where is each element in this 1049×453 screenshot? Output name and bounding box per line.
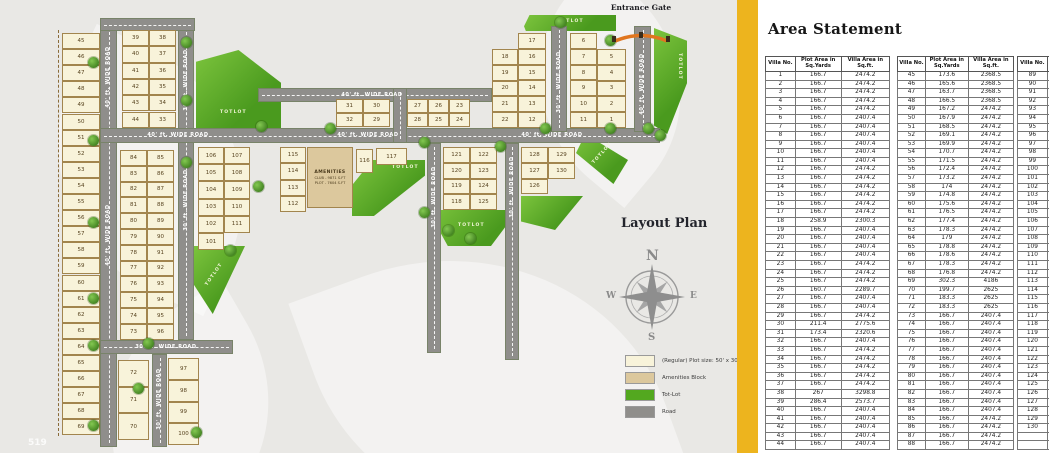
plot-124: 124	[470, 179, 497, 195]
table-cell: 166.7	[795, 407, 841, 416]
table-cell: 2474.2	[968, 123, 1013, 132]
table-cell: 2407.4	[968, 398, 1013, 407]
table-cell: 46	[898, 80, 926, 89]
table-cell: 178.3	[925, 261, 968, 270]
table-row: 106	[1018, 218, 1049, 227]
table-cell: 121	[1018, 346, 1048, 355]
table-row: 76166.72407.4	[898, 338, 1014, 347]
table-cell: 166.7	[795, 140, 841, 149]
table-cell: 166.7	[795, 441, 841, 450]
table-cell: 183.3	[925, 295, 968, 304]
column-header: Villa No.	[1018, 57, 1048, 72]
table-cell: 2407.4	[841, 226, 889, 235]
legend-item: Road	[625, 406, 676, 418]
table-row: 116	[1018, 303, 1049, 312]
table-row: 48166.52368.5	[898, 97, 1014, 106]
table-cell: 91	[1018, 89, 1048, 98]
table-cell: 78	[898, 355, 926, 364]
table-row: 6166.72407.4	[766, 114, 890, 123]
plot-84: 84	[120, 150, 147, 166]
table-cell: 27	[766, 295, 796, 304]
tree-icon	[88, 135, 99, 146]
table-row: 61176.52474.2	[898, 209, 1014, 218]
table-row: 4166.72474.2	[766, 97, 890, 106]
table-row: 59174.82474.2	[898, 192, 1014, 201]
table-cell: 2474.2	[968, 209, 1013, 218]
table-cell: 166.7	[795, 261, 841, 270]
plot-80: 80	[120, 213, 147, 229]
plot-62: 62	[62, 307, 100, 323]
table-row: 581742474.2	[898, 183, 1014, 192]
table-row: 77166.72407.4	[898, 346, 1014, 355]
column-header: Plot Area in Sq.Yards	[925, 57, 968, 72]
tree-icon	[465, 233, 476, 244]
road-label: 40' ft. WIDE ROAD	[341, 92, 402, 98]
table-row: 115	[1018, 295, 1049, 304]
plot-29: 29	[363, 113, 390, 127]
table-cell: 267	[795, 389, 841, 398]
table-row: 119	[1018, 329, 1049, 338]
table-cell: 166.7	[925, 346, 968, 355]
table-cell: 55	[898, 157, 926, 166]
table-cell: 88	[898, 441, 926, 450]
plot-81: 81	[120, 197, 147, 213]
table-cell: 166.7	[795, 372, 841, 381]
table-cell: 85	[898, 415, 926, 424]
plot-88: 88	[147, 197, 174, 213]
table-row: 89	[1018, 71, 1049, 80]
table-cell: 2775.6	[841, 321, 889, 330]
plot-104: 104	[198, 181, 224, 198]
plot-40: 40	[122, 46, 149, 62]
table-cell: 70	[898, 286, 926, 295]
table-cell: 2407.4	[841, 132, 889, 141]
table-cell: 103	[1018, 192, 1048, 201]
table-cell: 15	[766, 192, 796, 201]
table-cell: 25	[766, 278, 796, 287]
table-cell: 126	[1018, 389, 1048, 398]
plot-120: 120	[443, 163, 470, 179]
table-cell: 166.7	[795, 183, 841, 192]
plot-8: 8	[570, 65, 597, 81]
table-row: 12166.72474.2	[766, 166, 890, 175]
plot-36: 36	[149, 63, 176, 79]
table-cell: 106	[1018, 218, 1048, 227]
road-label: 40' ft. WIDE ROAD	[521, 132, 582, 138]
plot-42: 42	[122, 79, 149, 95]
plot-30: 30	[363, 99, 390, 113]
plot-127: 127	[521, 163, 548, 179]
table-cell: 166.7	[925, 415, 968, 424]
table-cell: 166.7	[795, 338, 841, 347]
table-row: 14166.72474.2	[766, 183, 890, 192]
plot-121: 121	[443, 147, 470, 163]
plot-43: 43	[122, 95, 149, 111]
table-cell: 166.7	[795, 192, 841, 201]
table-row: 65178.82474.2	[898, 243, 1014, 252]
table-cell: 166.7	[925, 338, 968, 347]
table-cell: 34	[766, 355, 796, 364]
table-cell: 2407.4	[841, 243, 889, 252]
plot-67: 67	[62, 387, 100, 403]
table-row: 75166.72407.4	[898, 329, 1014, 338]
table-cell: 87	[898, 432, 926, 441]
table-cell: 178.8	[925, 243, 968, 252]
table-cell: 2300.3	[841, 218, 889, 227]
plot-38: 38	[149, 30, 176, 46]
table-row: 120	[1018, 338, 1049, 347]
table-cell: 2474.2	[968, 252, 1013, 261]
plot-114: 114	[280, 163, 306, 179]
tree-icon	[605, 123, 616, 134]
table-cell: 2474.2	[841, 355, 889, 364]
plot-28: 28	[407, 113, 428, 127]
road-label: 40' ft. WIDE ROAD	[105, 46, 111, 107]
table-cell: 12	[766, 166, 796, 175]
table-cell: 2407.4	[841, 295, 889, 304]
table-cell: 90	[1018, 80, 1048, 89]
table-cell: 2474.2	[968, 114, 1013, 123]
table-cell: 110	[1018, 252, 1048, 261]
legend-swatch	[625, 355, 655, 367]
road-label: 30' ft. WIDE ROAD	[509, 156, 515, 217]
table-row: 30211.42775.6	[766, 321, 890, 330]
table-cell: 166.7	[925, 389, 968, 398]
plot-59: 59	[62, 258, 100, 274]
plot-76: 76	[120, 276, 147, 292]
table-cell: 79	[898, 364, 926, 373]
table-cell: 171.5	[925, 157, 968, 166]
table-cell: 74	[898, 321, 926, 330]
tree-icon	[191, 427, 202, 438]
plot-24: 24	[449, 113, 470, 127]
table-row: 105	[1018, 209, 1049, 218]
table-row: 46165.62368.5	[898, 80, 1014, 89]
table-cell: 75	[898, 329, 926, 338]
tree-icon	[88, 293, 99, 304]
table-cell: 35	[766, 364, 796, 373]
table-cell: 2474.2	[841, 209, 889, 218]
table-cell: 2407.4	[841, 149, 889, 158]
legend-swatch	[625, 389, 655, 401]
plot-74: 74	[120, 308, 147, 324]
legend-item: (Regular) Plot size: 50' x 30'	[625, 355, 737, 367]
table-cell: 31	[766, 329, 796, 338]
table-row: 44166.72407.4	[766, 441, 890, 450]
table-cell: 2474.2	[841, 261, 889, 270]
table-cell: 2474.2	[841, 192, 889, 201]
tree-icon	[419, 137, 430, 148]
table-row: 9166.72407.4	[766, 140, 890, 149]
table-cell: 77	[898, 346, 926, 355]
table-row: 13166.72474.2	[766, 175, 890, 184]
plot-10: 10	[570, 96, 597, 112]
table-cell: 166.7	[795, 71, 841, 80]
tree-icon	[181, 95, 192, 106]
table-cell: 114	[1018, 286, 1048, 295]
table-cell: 166.7	[795, 114, 841, 123]
road-label: 40' ft. WIDE ROAD	[147, 132, 208, 138]
plot-57: 57	[62, 226, 100, 242]
faint-watermark: 519	[28, 438, 47, 448]
plot-90: 90	[147, 229, 174, 245]
table-cell: 178.3	[925, 226, 968, 235]
table-row: 50167.92474.2	[898, 114, 1014, 123]
table-cell: 169.9	[925, 140, 968, 149]
table-cell: 166.7	[925, 372, 968, 381]
table-header-row: Villa No.Plot Area in Sq.YardsVilla Area…	[898, 57, 1014, 72]
table-cell: 2368.5	[968, 89, 1013, 98]
table-cell: 173.6	[925, 71, 968, 80]
table-cell: 2407.4	[841, 407, 889, 416]
tree-icon	[643, 123, 654, 134]
table-cell: 166.7	[925, 407, 968, 416]
table-cell: 166.7	[795, 432, 841, 441]
plot-4: 4	[597, 65, 626, 81]
column-header: Villa No.	[898, 57, 926, 72]
table-cell: 163.7	[925, 89, 968, 98]
table-row: 36166.72474.2	[766, 372, 890, 381]
table-cell: 52	[898, 132, 926, 141]
table-cell: 2474.2	[841, 166, 889, 175]
table-cell: 2407.4	[841, 432, 889, 441]
table-cell: 2407.4	[968, 329, 1013, 338]
table-cell: 86	[898, 424, 926, 433]
table-cell: 166.7	[795, 209, 841, 218]
table-cell: 65	[898, 243, 926, 252]
table-row: 2166.72474.2	[766, 80, 890, 89]
table-row: 32166.72407.4	[766, 338, 890, 347]
plot-96: 96	[147, 324, 174, 340]
villa-table-1: Villa No.Plot Area in Sq.YardsVilla Area…	[765, 56, 890, 450]
table-row: 25166.72474.2	[766, 278, 890, 287]
table-row: 17166.72474.2	[766, 209, 890, 218]
legend-swatch	[625, 406, 655, 418]
table-cell: 30	[766, 321, 796, 330]
table-cell: 41	[766, 415, 796, 424]
table-cell: 56	[898, 166, 926, 175]
table-cell: 2474.2	[968, 218, 1013, 227]
area-statement-panel: Area Statement Villa No.Plot Area in Sq.…	[758, 0, 1049, 453]
tree-icon	[88, 420, 99, 431]
table-row: 71183.32625	[898, 295, 1014, 304]
table-cell: 2474.2	[841, 200, 889, 209]
table-cell: 166.7	[795, 424, 841, 433]
table-cell: 166.7	[795, 355, 841, 364]
tree-icon	[256, 121, 267, 132]
table-cell: 166.7	[925, 364, 968, 373]
table-row: 70199.72625	[898, 286, 1014, 295]
table-cell: 49	[898, 106, 926, 115]
table-cell: 2407.4	[841, 424, 889, 433]
plot-107: 107	[224, 147, 250, 164]
table-cell: 19	[766, 226, 796, 235]
legend-item: Tot-Lot	[625, 389, 680, 401]
table-cell: 166.7	[795, 157, 841, 166]
table-cell: 2474.2	[841, 89, 889, 98]
plot-111: 111	[224, 216, 250, 233]
table-cell: 59	[898, 192, 926, 201]
table-cell: 170.7	[925, 149, 968, 158]
table-cell: 2407.4	[841, 441, 889, 450]
table-cell: 2407.4	[841, 235, 889, 244]
table-row: 8166.72407.4	[766, 132, 890, 141]
villa-table-3: Villa No.Plot Area in Sq.YardsVilla Area…	[1017, 56, 1049, 450]
table-cell: 122	[1018, 355, 1048, 364]
table-row: 117	[1018, 312, 1049, 321]
table-row: 49167.22474.2	[898, 106, 1014, 115]
table-row: 69302.34186	[898, 278, 1014, 287]
table-cell: 104	[1018, 200, 1048, 209]
table-cell: 2474.2	[841, 97, 889, 106]
table-cell: 168.5	[925, 123, 968, 132]
table-row: 26160.72289.7	[766, 286, 890, 295]
table-row: 104	[1018, 200, 1049, 209]
table-row: 113	[1018, 278, 1049, 287]
area-statement-title: Area Statement	[768, 20, 902, 38]
table-cell: 2474.2	[968, 235, 1013, 244]
table-cell: 68	[898, 269, 926, 278]
table-cell: 119	[1018, 329, 1048, 338]
plot-34: 34	[149, 95, 176, 111]
table-cell: 179	[925, 235, 968, 244]
plot-129: 129	[548, 147, 575, 163]
table-cell: 82	[898, 389, 926, 398]
map-title: Layout Plan	[621, 216, 707, 231]
table-cell: 98	[1018, 149, 1048, 158]
plot-48: 48	[62, 81, 100, 97]
plot-126: 126	[521, 179, 548, 195]
table-row: 67178.32474.2	[898, 261, 1014, 270]
table-row: 88166.72474.2	[898, 441, 1014, 450]
plot-54: 54	[62, 178, 100, 194]
table-cell: 97	[1018, 140, 1048, 149]
road-label: 30' ft. WIDE ROAD	[556, 51, 562, 112]
table-row: 41166.72407.4	[766, 415, 890, 424]
legend-label: Tot-Lot	[662, 392, 680, 398]
table-row: 34166.72474.2	[766, 355, 890, 364]
table-cell: 169.1	[925, 132, 968, 141]
table-cell: 166.7	[795, 226, 841, 235]
table-cell: 130	[1018, 424, 1048, 433]
table-cell: 2474.2	[841, 278, 889, 287]
table-cell: 2474.2	[968, 269, 1013, 278]
table-row: 94	[1018, 114, 1049, 123]
table-cell: 211.4	[795, 321, 841, 330]
tree-icon	[540, 123, 551, 134]
table-row: 56172.42474.2	[898, 166, 1014, 175]
table-cell: 166.7	[795, 89, 841, 98]
table-cell: 111	[1018, 261, 1048, 270]
table-cell: 166.5	[925, 97, 968, 106]
tree-icon	[88, 217, 99, 228]
table-cell: 302.3	[925, 278, 968, 287]
road-label: 40' ft. WIDE ROAD	[337, 132, 398, 138]
table-row: 95	[1018, 123, 1049, 132]
table-cell: 2474.2	[968, 432, 1013, 441]
plot-82: 82	[120, 182, 147, 198]
plot-7: 7	[570, 49, 597, 65]
table-row: 3166.72474.2	[766, 89, 890, 98]
table-cell: 63	[898, 226, 926, 235]
amenities-club-area: CLUB - 9871 S.FT	[315, 176, 346, 180]
plot-32: 32	[336, 113, 363, 127]
table-cell: 173.4	[795, 329, 841, 338]
table-row: 24166.72474.2	[766, 269, 890, 278]
plot-130: 130	[548, 163, 575, 179]
totlot-label: TOTLOT	[677, 53, 682, 80]
table-cell: 69	[898, 278, 926, 287]
table-cell: 2407.4	[841, 123, 889, 132]
table-row	[1018, 441, 1049, 450]
tree-icon	[555, 17, 566, 28]
table-row: 52169.12474.2	[898, 132, 1014, 141]
tree-icon	[495, 141, 506, 152]
table-cell: 116	[1018, 303, 1048, 312]
table-row: 18258.92300.3	[766, 218, 890, 227]
table-cell: 174.8	[925, 192, 968, 201]
table-row: 118	[1018, 321, 1049, 330]
table-row: 107	[1018, 226, 1049, 235]
table-row: 382673298.8	[766, 389, 890, 398]
plot-109: 109	[224, 181, 250, 198]
tree-icon	[225, 245, 236, 256]
table-cell: 66	[898, 252, 926, 261]
table-cell: 166.7	[795, 175, 841, 184]
table-row	[1018, 432, 1049, 441]
plot-63: 63	[62, 323, 100, 339]
table-row: 121	[1018, 346, 1049, 355]
table-cell: 2407.4	[841, 303, 889, 312]
table-cell: 13	[766, 175, 796, 184]
plot-23: 23	[449, 99, 470, 113]
table-cell: 175.6	[925, 200, 968, 209]
table-row: 54170.72474.2	[898, 149, 1014, 158]
table-cell: 2407.4	[841, 338, 889, 347]
table-cell: 2474.2	[841, 183, 889, 192]
table-cell: 172.4	[925, 166, 968, 175]
table-cell: 166.7	[795, 200, 841, 209]
table-row: 79166.72407.4	[898, 364, 1014, 373]
table-cell: 44	[766, 441, 796, 450]
table-cell: 67	[898, 261, 926, 270]
table-cell: 166.7	[925, 424, 968, 433]
column-header: Villa Area in Sq.ft.	[841, 57, 889, 72]
plot-79: 79	[120, 229, 147, 245]
table-cell: 2474.2	[841, 381, 889, 390]
table-cell: 2474.2	[841, 175, 889, 184]
table-cell: 4186	[968, 278, 1013, 287]
table-cell: 81	[898, 381, 926, 390]
table-cell: 107	[1018, 226, 1048, 235]
plot-105: 105	[198, 164, 224, 181]
table-cell: 22	[766, 252, 796, 261]
table-cell: 165.6	[925, 80, 968, 89]
road-label: 30' ft. WIDE ROAD	[156, 368, 162, 429]
table-cell: 2474.2	[968, 243, 1013, 252]
plot-119: 119	[443, 179, 470, 195]
plot-128: 128	[521, 147, 548, 163]
table-row: 114	[1018, 286, 1049, 295]
table-cell: 2474.2	[968, 183, 1013, 192]
plot-19: 19	[492, 65, 518, 81]
plot-31: 31	[336, 99, 363, 113]
compass-south-label: S	[648, 332, 655, 343]
amenities-title: AMENITIES	[314, 170, 345, 175]
plot-102: 102	[198, 216, 224, 233]
table-cell: 166.7	[925, 441, 968, 450]
table-cell: 14	[766, 183, 796, 192]
